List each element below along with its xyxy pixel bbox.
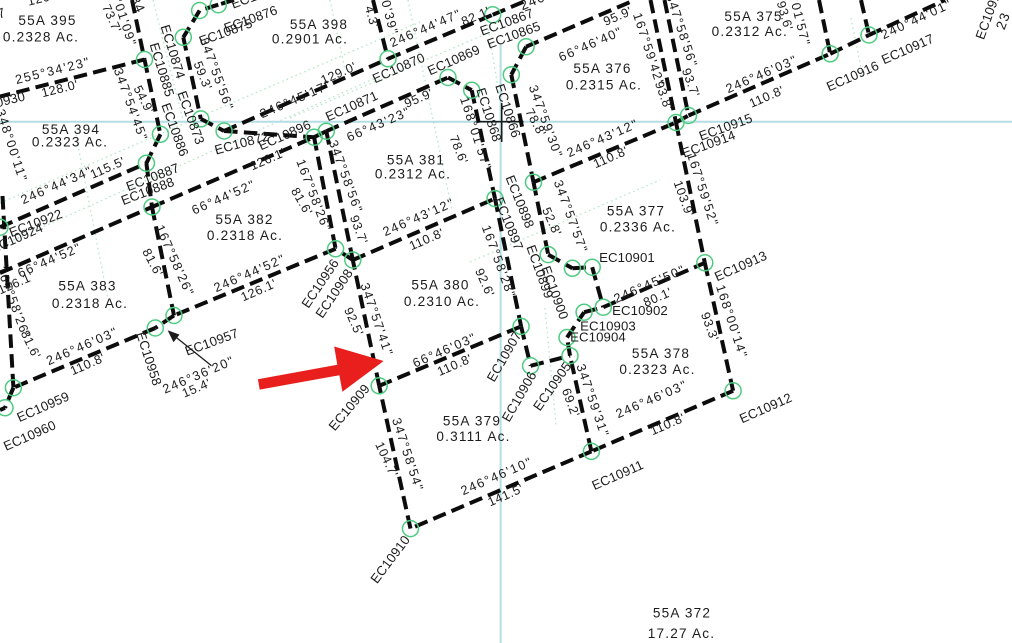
svg-text:0.2310 Ac.: 0.2310 Ac. [404, 294, 480, 309]
svg-text:0.2318 Ac.: 0.2318 Ac. [207, 228, 283, 243]
svg-text:0.2323 Ac.: 0.2323 Ac. [32, 135, 108, 150]
svg-text:EC10901: EC10901 [599, 250, 655, 265]
svg-text:0.2318 Ac.: 0.2318 Ac. [52, 296, 128, 311]
svg-text:EC10904: EC10904 [570, 329, 626, 344]
svg-text:0.2336 Ac.: 0.2336 Ac. [600, 220, 676, 235]
svg-text:55A 398: 55A 398 [290, 17, 348, 32]
svg-text:55A 381: 55A 381 [387, 153, 445, 168]
svg-text:55A 382: 55A 382 [215, 212, 273, 227]
svg-text:0.2315 Ac.: 0.2315 Ac. [566, 78, 642, 93]
svg-text:55A 377: 55A 377 [607, 204, 665, 219]
svg-text:55A 379: 55A 379 [443, 414, 501, 429]
svg-text:17.27 Ac.: 17.27 Ac. [648, 626, 716, 641]
svg-text:0.2323 Ac.: 0.2323 Ac. [619, 362, 695, 377]
svg-text:55A 376: 55A 376 [573, 61, 631, 76]
svg-text:0.3111 Ac.: 0.3111 Ac. [436, 429, 510, 444]
svg-text:55A 378: 55A 378 [632, 346, 690, 361]
svg-text:55A 372: 55A 372 [653, 606, 711, 621]
svg-text:55A 383: 55A 383 [58, 279, 116, 294]
svg-text:EC10902: EC10902 [612, 303, 668, 318]
svg-text:55A 395: 55A 395 [18, 13, 76, 28]
svg-text:55A 380: 55A 380 [411, 278, 469, 293]
svg-text:0.2328 Ac.: 0.2328 Ac. [3, 30, 79, 45]
svg-text:55A 375: 55A 375 [724, 9, 782, 24]
svg-text:0.2312 Ac.: 0.2312 Ac. [375, 167, 451, 182]
svg-text:0.2312 Ac.: 0.2312 Ac. [712, 24, 788, 39]
svg-text:0.2901 Ac.: 0.2901 Ac. [272, 32, 348, 47]
